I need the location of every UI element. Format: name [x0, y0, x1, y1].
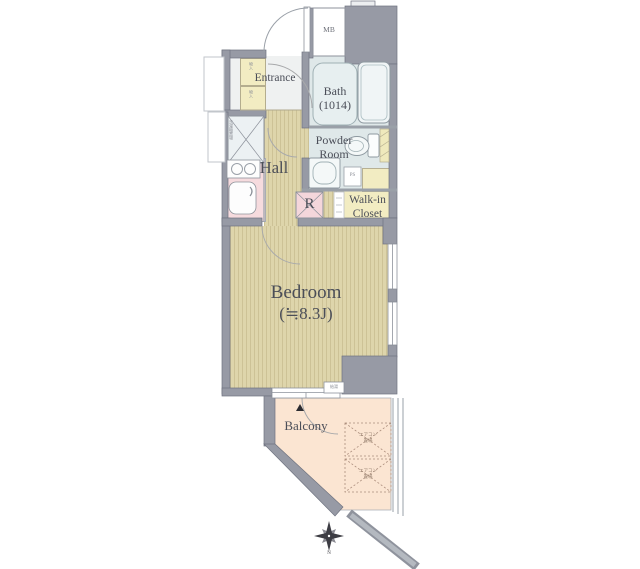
balcony-area: [272, 398, 403, 516]
building-edge: [349, 513, 417, 567]
bath-label: Bath (1014): [311, 84, 359, 112]
wic-line2: Closet: [340, 208, 395, 222]
shoe-box-upper-label: 物入: [249, 62, 253, 82]
ac-unit-2-label: エアコン 置場: [345, 469, 391, 480]
powder-room-label: Powder Room: [306, 133, 362, 161]
water-heater-label: 給湯: [324, 385, 344, 389]
bedroom-label: Bedroom (≒8.3J): [240, 282, 372, 324]
ac2-line2: 置場: [345, 475, 391, 481]
compass-letter: N: [322, 551, 336, 557]
ac-unit-1-label: エアコン 置場: [345, 433, 391, 444]
walk-in-closet-floor-upper: [362, 168, 394, 192]
exterior-voids: [204, 57, 225, 162]
ac1-line2: 置場: [345, 439, 391, 445]
walk-in-closet-label: Walk-in Closet: [340, 194, 395, 221]
powder-line1: Powder: [306, 133, 362, 147]
refrigerator-label: R: [296, 196, 323, 214]
bedroom-size: (≒8.3J): [240, 304, 372, 324]
meter-box-label: MB: [313, 26, 345, 35]
direction-triangle: [296, 404, 304, 411]
powder-line2: Room: [306, 147, 362, 161]
bath-name: Bath: [311, 84, 359, 98]
wic-line1: Walk-in: [340, 194, 395, 208]
shoe-box-lower-label: 物入: [249, 90, 253, 110]
compass-icon: [314, 521, 344, 551]
floor-plan: MB Entrance Bath (1014) Powder Room Hall…: [0, 0, 640, 569]
balcony-label: Balcony: [276, 418, 336, 433]
pipe-space-label: PS: [344, 173, 361, 179]
bedroom-name: Bedroom: [240, 282, 372, 304]
hall-label: Hall: [253, 158, 295, 177]
bath-size: (1014): [311, 98, 359, 112]
washer-label: 洗濯機置場: [229, 120, 233, 160]
